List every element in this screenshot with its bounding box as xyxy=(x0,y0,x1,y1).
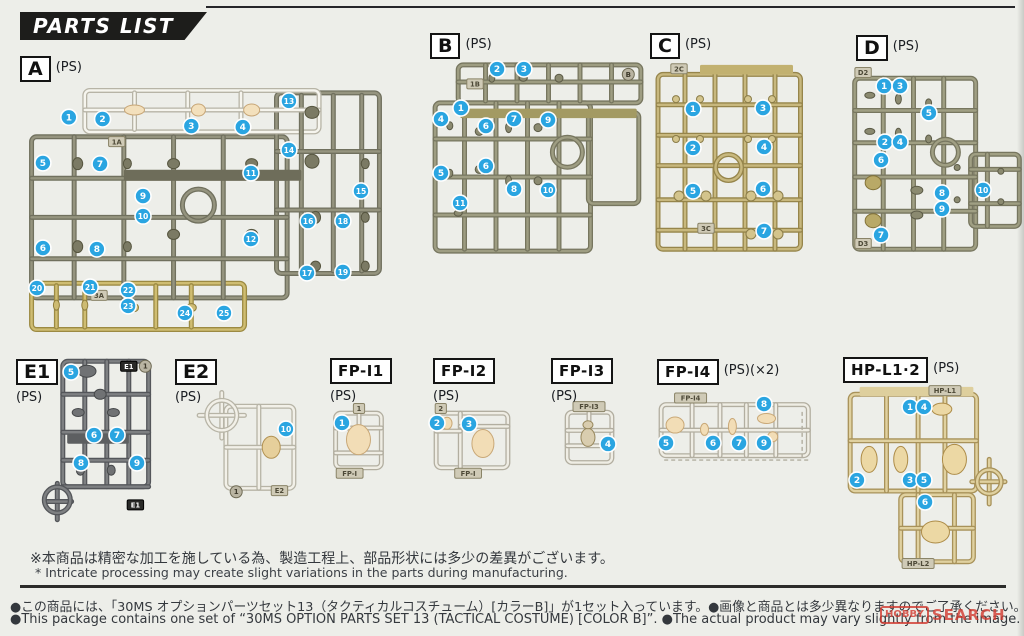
svg-text:5: 5 xyxy=(663,439,669,449)
svg-text:7: 7 xyxy=(736,439,742,449)
runner-material: (PS) xyxy=(933,357,959,381)
part-marker-B-7: 7 xyxy=(506,111,522,127)
svg-text:6: 6 xyxy=(483,122,489,132)
svg-text:3: 3 xyxy=(897,82,903,92)
runner-letter: FP-I4 xyxy=(657,359,719,385)
svg-text:1: 1 xyxy=(690,105,696,115)
part-marker-B-8: 8 xyxy=(506,181,522,197)
svg-text:2: 2 xyxy=(854,476,860,486)
runner-FP-I4-diagram: FP-I485679 xyxy=(658,390,813,463)
svg-text:9: 9 xyxy=(134,459,140,469)
svg-text:11: 11 xyxy=(246,169,257,178)
svg-text:E2: E2 xyxy=(275,487,285,495)
svg-text:24: 24 xyxy=(180,309,191,318)
part-marker-B-6: 6 xyxy=(478,158,494,174)
part-marker-D-6: 6 xyxy=(873,152,889,168)
watermark-logo-box: HOBBY xyxy=(880,606,929,624)
svg-text:E1: E1 xyxy=(124,363,134,371)
page-title: PARTS LIST xyxy=(20,12,207,40)
gate-tag: E1 xyxy=(121,361,137,371)
part-marker-A-11: 11 xyxy=(243,165,259,181)
runner-label-B: B(PS) xyxy=(430,33,492,59)
svg-text:3: 3 xyxy=(466,420,472,430)
svg-text:1B: 1B xyxy=(470,81,480,89)
runner-C-diagram: 2C3C1324567 xyxy=(655,63,805,253)
svg-text:6: 6 xyxy=(483,162,489,172)
part-marker-A-3: 3 xyxy=(183,118,199,134)
svg-text:2: 2 xyxy=(494,65,500,75)
svg-text:10: 10 xyxy=(543,186,554,195)
part-marker-B-2: 2 xyxy=(489,61,505,77)
part-marker-D-2: 2 xyxy=(877,134,893,150)
runner-material: (PS) xyxy=(465,33,491,57)
part-marker-C-4: 4 xyxy=(756,139,772,155)
part-marker-A-14: 14 xyxy=(281,142,297,158)
svg-text:FP-I: FP-I xyxy=(342,470,357,478)
part-marker-HP-L1-2-5: 5 xyxy=(916,472,932,488)
parts-list-page: PARTS LIST A(PS)1A3A12345678910111213141… xyxy=(0,0,1024,636)
svg-text:6: 6 xyxy=(922,498,928,508)
svg-text:17: 17 xyxy=(302,269,313,278)
runner-FP-I1-diagram: 1FP-I1 xyxy=(333,403,385,481)
part-marker-A-5: 5 xyxy=(35,155,51,171)
svg-text:9: 9 xyxy=(545,116,551,126)
runner-letter: B xyxy=(430,33,460,59)
runner-label-FP-I1: FP-I1(PS) xyxy=(330,358,392,409)
runner-HP-L1-2-diagram: HP-L1HP-L2142356 xyxy=(847,385,1005,571)
runner-material: (PS)(×2) xyxy=(724,359,780,383)
part-marker-E1-8: 8 xyxy=(73,455,89,471)
svg-text:16: 16 xyxy=(303,217,314,226)
svg-text:5: 5 xyxy=(921,476,927,486)
part-marker-B-10: 10 xyxy=(540,182,556,198)
svg-text:25: 25 xyxy=(219,309,230,318)
watermark-text: SEARCH xyxy=(932,606,1006,624)
part-marker-A-6: 6 xyxy=(35,240,51,256)
runner-material: (PS) xyxy=(685,33,711,57)
runner-letter: FP-I3 xyxy=(551,358,613,384)
svg-text:4: 4 xyxy=(897,138,903,148)
gate-tag: 1B xyxy=(467,79,483,89)
gate-tag: FP-I xyxy=(455,468,482,478)
svg-text:2: 2 xyxy=(690,144,696,154)
part-marker-FP-I4-8: 8 xyxy=(756,396,772,412)
svg-text:7: 7 xyxy=(878,231,884,241)
part-marker-A-25: 25 xyxy=(216,305,232,321)
runner-FP-I2-diagram: 2FP-I23 xyxy=(433,403,511,481)
svg-text:3: 3 xyxy=(521,65,527,75)
gate-tag: B xyxy=(622,68,634,80)
svg-text:23: 23 xyxy=(123,302,134,311)
part-marker-D-5: 5 xyxy=(921,105,937,121)
svg-text:12: 12 xyxy=(246,235,257,244)
svg-text:2: 2 xyxy=(434,419,440,429)
part-marker-HP-L1-2-2: 2 xyxy=(849,472,865,488)
runner-letter: FP-I2 xyxy=(433,358,495,384)
svg-text:FP-I: FP-I xyxy=(461,470,476,478)
svg-text:4: 4 xyxy=(921,403,927,413)
part-marker-C-1: 1 xyxy=(685,101,701,117)
svg-text:7: 7 xyxy=(511,115,517,125)
part-marker-FP-I4-9: 9 xyxy=(756,435,772,451)
part-marker-B-9: 9 xyxy=(540,112,556,128)
runner-letter: D xyxy=(856,35,888,61)
part-marker-E2-10: 10 xyxy=(278,421,294,437)
gate-tag: 3C xyxy=(698,223,714,233)
svg-text:5: 5 xyxy=(690,187,696,197)
svg-text:10: 10 xyxy=(978,186,989,195)
runner-E1-diagram: E11E156789 xyxy=(43,358,153,523)
svg-text:3C: 3C xyxy=(701,225,711,233)
parts-list-banner: PARTS LIST xyxy=(20,12,207,40)
svg-text:1: 1 xyxy=(66,113,72,123)
part-marker-E1-9: 9 xyxy=(129,455,145,471)
svg-text:3: 3 xyxy=(188,122,194,132)
svg-text:1: 1 xyxy=(881,82,887,92)
svg-text:4: 4 xyxy=(605,440,611,450)
part-marker-FP-I4-5: 5 xyxy=(658,435,674,451)
part-marker-C-6: 6 xyxy=(755,181,771,197)
svg-text:9: 9 xyxy=(939,205,945,215)
svg-text:11: 11 xyxy=(455,199,466,208)
svg-text:6: 6 xyxy=(91,431,97,441)
runner-label-C: C(PS) xyxy=(650,33,711,59)
top-rule xyxy=(206,6,1015,8)
svg-text:E1: E1 xyxy=(131,501,141,509)
gate-tag: HP-L1 xyxy=(929,386,961,396)
part-marker-A-1: 1 xyxy=(61,109,77,125)
runner-label-A: A(PS) xyxy=(20,56,82,82)
part-marker-A-4: 4 xyxy=(235,119,251,135)
part-marker-E1-7: 7 xyxy=(109,427,125,443)
part-marker-A-18: 18 xyxy=(335,213,351,229)
runner-material: (PS) xyxy=(551,385,577,409)
part-marker-A-23: 23 xyxy=(120,298,136,314)
svg-text:8: 8 xyxy=(94,245,100,255)
svg-text:D2: D2 xyxy=(858,69,869,77)
svg-text:7: 7 xyxy=(761,227,767,237)
svg-text:14: 14 xyxy=(284,146,295,155)
svg-text:4: 4 xyxy=(240,123,246,133)
svg-text:8: 8 xyxy=(939,189,945,199)
svg-text:10: 10 xyxy=(281,425,292,434)
part-marker-D-8: 8 xyxy=(934,185,950,201)
part-marker-A-15: 15 xyxy=(353,183,369,199)
runner-material: (PS) xyxy=(433,385,459,409)
part-marker-A-7: 7 xyxy=(92,156,108,172)
svg-text:B: B xyxy=(626,71,631,79)
runner-material: (PS) xyxy=(175,386,201,410)
part-marker-B-5: 5 xyxy=(433,165,449,181)
part-marker-FP-I4-6: 6 xyxy=(705,435,721,451)
gate-tag: 2C xyxy=(671,64,687,74)
part-marker-A-8: 8 xyxy=(89,241,105,257)
footer-divider xyxy=(20,585,1006,588)
part-marker-B-3: 3 xyxy=(516,61,532,77)
part-marker-A-12: 12 xyxy=(243,231,259,247)
svg-text:6: 6 xyxy=(760,185,766,195)
part-marker-D-4: 4 xyxy=(892,134,908,150)
part-marker-A-20: 20 xyxy=(29,280,45,296)
runner-letter: E1 xyxy=(16,359,58,385)
runner-material: (PS) xyxy=(330,385,356,409)
svg-text:6: 6 xyxy=(710,439,716,449)
part-marker-D-1: 1 xyxy=(876,78,892,94)
hobby-search-watermark: HOBBY SEARCH xyxy=(880,606,1006,624)
runner-label-HP-L1-2: HP-L1·2(PS) xyxy=(843,357,959,383)
gate-tag: 1 xyxy=(139,360,151,372)
svg-text:15: 15 xyxy=(356,187,367,196)
runner-material: (PS) xyxy=(56,56,82,80)
part-marker-B-11: 11 xyxy=(452,195,468,211)
part-marker-A-17: 17 xyxy=(299,265,315,281)
runner-label-E2: E2(PS) xyxy=(175,359,217,410)
svg-text:9: 9 xyxy=(761,439,767,449)
gate-tag: E2 xyxy=(271,486,287,496)
part-marker-E1-5: 5 xyxy=(63,364,79,380)
runner-label-FP-I4: FP-I4(PS)(×2) xyxy=(657,359,779,385)
part-marker-D-7: 7 xyxy=(873,227,889,243)
part-marker-HP-L1-2-6: 6 xyxy=(917,494,933,510)
part-marker-A-21: 21 xyxy=(82,279,98,295)
svg-text:18: 18 xyxy=(338,217,349,226)
svg-text:19: 19 xyxy=(338,268,349,277)
svg-text:10: 10 xyxy=(138,212,149,221)
part-marker-A-10: 10 xyxy=(135,208,151,224)
gate-tag: 1 xyxy=(230,486,242,498)
svg-text:5: 5 xyxy=(68,368,74,378)
note-precision-en: * Intricate processing may create slight… xyxy=(35,565,568,580)
svg-text:8: 8 xyxy=(511,185,517,195)
gate-tag: D3 xyxy=(855,239,871,249)
svg-text:1: 1 xyxy=(234,488,239,496)
part-marker-FP-I4-7: 7 xyxy=(731,435,747,451)
part-marker-D-3: 3 xyxy=(892,78,908,94)
part-marker-C-5: 5 xyxy=(685,183,701,199)
part-marker-FP-I2-2: 2 xyxy=(429,415,445,431)
svg-text:5: 5 xyxy=(926,109,932,119)
svg-text:HP-L1: HP-L1 xyxy=(934,387,957,395)
svg-text:7: 7 xyxy=(97,160,103,170)
gate-tag: D2 xyxy=(855,68,871,78)
runner-FP-I3-diagram: FP-I34 xyxy=(563,401,615,471)
part-marker-A-2: 2 xyxy=(95,111,111,127)
runner-letter: HP-L1·2 xyxy=(843,357,928,383)
part-marker-FP-I3-4: 4 xyxy=(600,436,616,452)
part-marker-B-6: 6 xyxy=(478,118,494,134)
part-marker-C-2: 2 xyxy=(685,140,701,156)
svg-text:4: 4 xyxy=(761,143,767,153)
part-marker-B-1: 1 xyxy=(453,100,469,116)
runner-letter: C xyxy=(650,33,680,59)
part-marker-FP-I1-1: 1 xyxy=(334,415,350,431)
part-marker-E1-6: 6 xyxy=(86,427,102,443)
svg-text:HP-L2: HP-L2 xyxy=(907,560,930,568)
gate-tag: 1A xyxy=(109,137,125,147)
part-marker-A-13: 13 xyxy=(281,93,297,109)
part-marker-D-10: 10 xyxy=(975,182,991,198)
svg-text:22: 22 xyxy=(123,286,134,295)
svg-text:D3: D3 xyxy=(858,240,869,248)
part-marker-C-3: 3 xyxy=(755,100,771,116)
svg-text:13: 13 xyxy=(284,97,295,106)
svg-text:6: 6 xyxy=(878,156,884,166)
runner-label-FP-I2: FP-I2(PS) xyxy=(433,358,495,409)
runner-D-diagram: D2D313524689107 xyxy=(853,63,1021,253)
part-marker-A-22: 22 xyxy=(120,282,136,298)
svg-text:8: 8 xyxy=(78,459,84,469)
svg-text:3: 3 xyxy=(907,476,913,486)
runner-letter: A xyxy=(20,56,51,82)
part-marker-B-4: 4 xyxy=(433,111,449,127)
part-marker-FP-I2-3: 3 xyxy=(461,416,477,432)
svg-text:1: 1 xyxy=(339,419,345,429)
part-marker-D-9: 9 xyxy=(934,201,950,217)
runner-label-E1: E1(PS) xyxy=(16,359,58,410)
svg-text:2: 2 xyxy=(99,115,105,125)
gate-tag: HP-L2 xyxy=(902,559,934,569)
svg-text:7: 7 xyxy=(114,431,120,441)
part-marker-A-24: 24 xyxy=(177,305,193,321)
gate-tag: FP-I xyxy=(336,468,363,478)
part-marker-A-9: 9 xyxy=(135,188,151,204)
gate-tag: FP-I4 xyxy=(675,393,707,403)
part-marker-A-16: 16 xyxy=(300,213,316,229)
svg-text:21: 21 xyxy=(85,283,96,292)
runner-letter: E2 xyxy=(175,359,217,385)
svg-text:FP-I4: FP-I4 xyxy=(681,395,701,403)
svg-text:1: 1 xyxy=(458,104,464,114)
svg-text:5: 5 xyxy=(438,169,444,179)
svg-text:8: 8 xyxy=(761,400,767,410)
runner-label-D: D(PS) xyxy=(856,35,919,61)
svg-text:2C: 2C xyxy=(674,65,684,73)
svg-text:4: 4 xyxy=(438,115,444,125)
svg-text:3: 3 xyxy=(760,104,766,114)
svg-text:1: 1 xyxy=(143,363,148,371)
contents-note-en: ●This package contains one set of “30MS … xyxy=(10,612,1020,627)
svg-text:20: 20 xyxy=(32,284,43,293)
svg-text:5: 5 xyxy=(40,159,46,169)
svg-text:9: 9 xyxy=(140,192,146,202)
svg-text:1: 1 xyxy=(907,403,913,413)
runner-A-diagram: 1A3A123456789101112131415161718192021222… xyxy=(28,88,383,332)
runner-label-FP-I3: FP-I3(PS) xyxy=(551,358,613,409)
part-marker-A-19: 19 xyxy=(335,264,351,280)
runner-letter: FP-I1 xyxy=(330,358,392,384)
runner-material: (PS) xyxy=(16,386,42,410)
runner-B-diagram: 1BB23146795681011 xyxy=(433,63,643,253)
svg-text:2: 2 xyxy=(882,138,888,148)
part-marker-HP-L1-2-4: 4 xyxy=(916,399,932,415)
runner-material: (PS) xyxy=(893,35,919,59)
svg-text:1A: 1A xyxy=(112,138,123,146)
gate-tag: E1 xyxy=(127,500,143,510)
svg-text:6: 6 xyxy=(40,244,46,254)
part-marker-C-7: 7 xyxy=(756,223,772,239)
